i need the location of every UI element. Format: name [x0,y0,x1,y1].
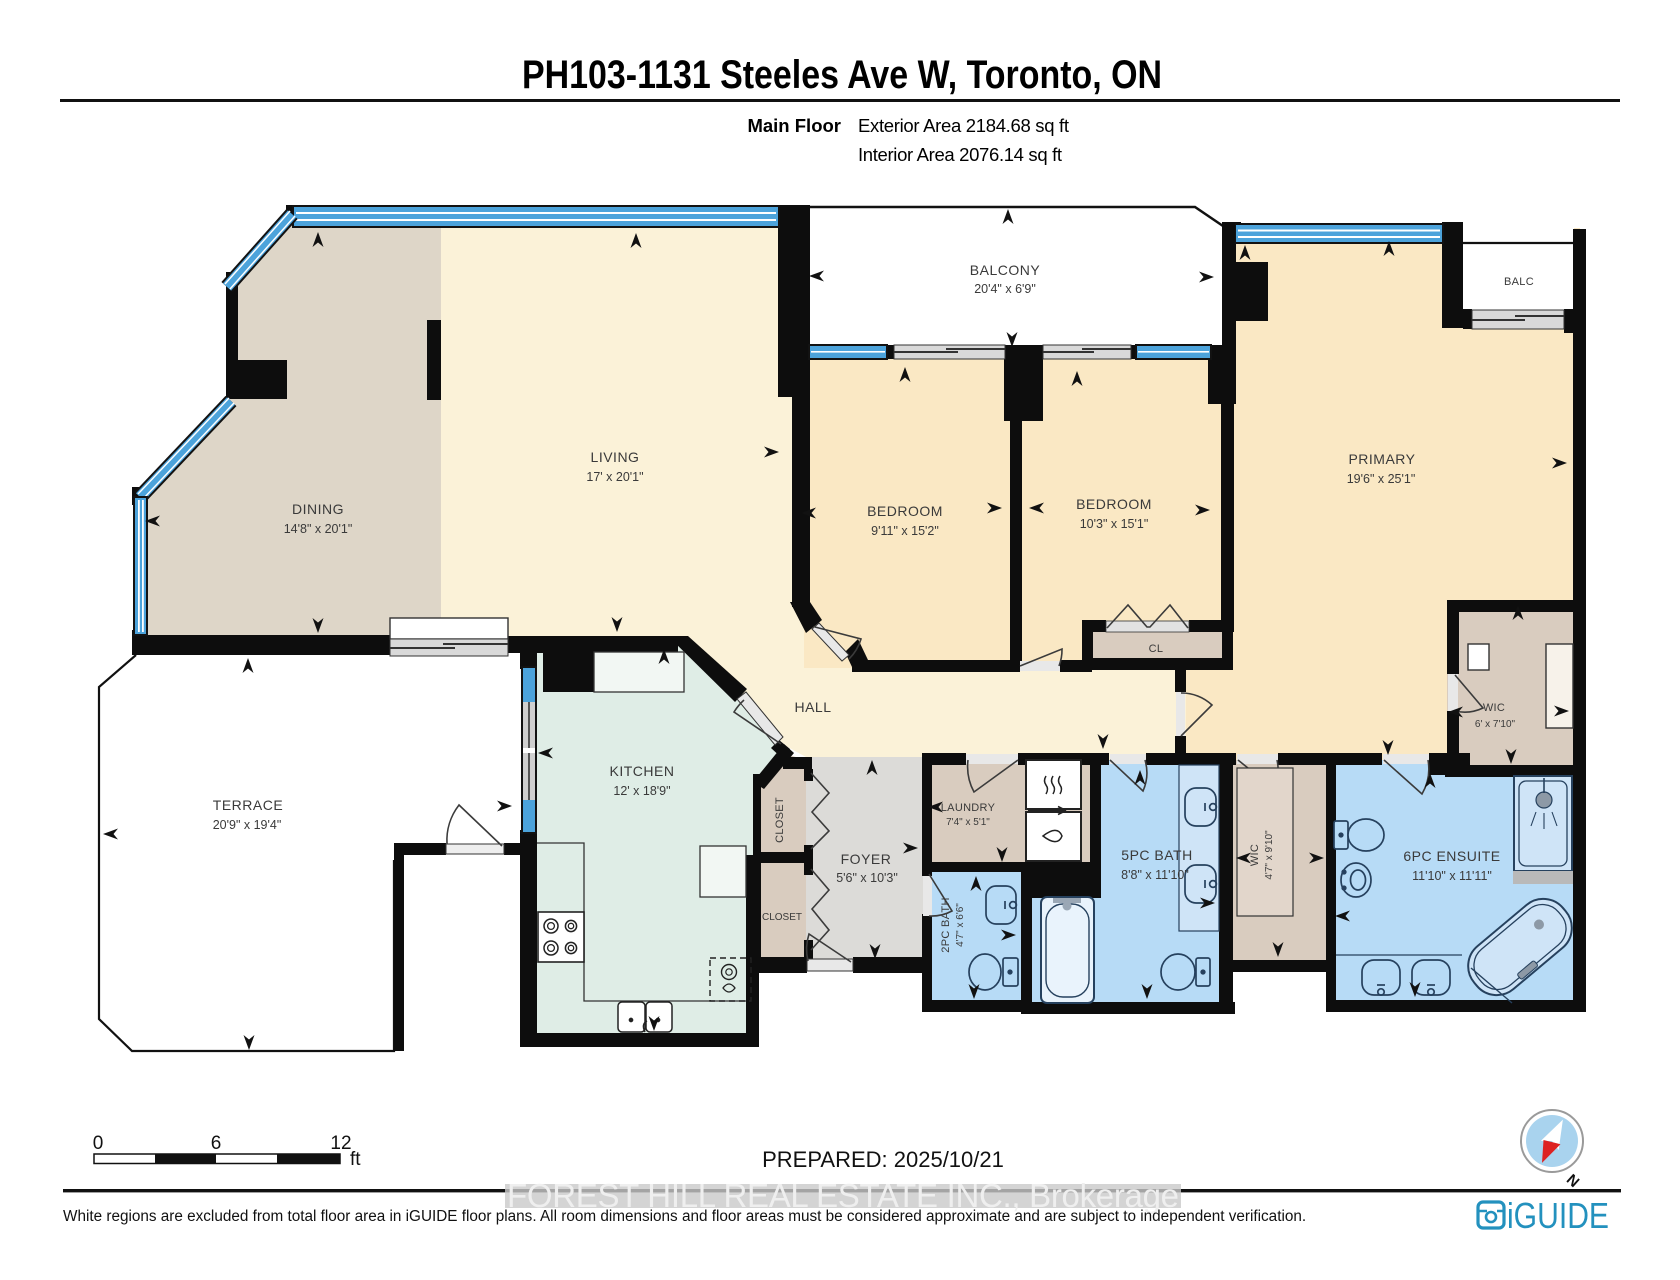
svg-text:17' x 20'1": 17' x 20'1" [586,470,643,484]
svg-text:7'4" x 5'1": 7'4" x 5'1" [946,817,990,828]
svg-text:DINING: DINING [292,501,344,517]
svg-text:Main Floor: Main Floor [747,115,841,136]
svg-text:2PC BATH: 2PC BATH [940,897,952,952]
svg-text:KITCHEN: KITCHEN [610,763,675,779]
svg-text:4'7" x 9'10": 4'7" x 9'10" [1264,830,1275,880]
svg-text:5'6" x 10'3": 5'6" x 10'3" [836,871,898,885]
svg-text:Interior Area 2076.14 sq ft: Interior Area 2076.14 sq ft [858,144,1062,165]
svg-text:WIC: WIC [1483,702,1505,714]
svg-text:CL: CL [1149,643,1164,655]
svg-text:FOYER: FOYER [841,851,892,867]
svg-text:6: 6 [211,1133,222,1154]
svg-text:Exterior Area 2184.68 sq ft: Exterior Area 2184.68 sq ft [858,115,1069,136]
svg-text:20'9" x 19'4": 20'9" x 19'4" [213,818,282,832]
svg-text:White regions are excluded fro: White regions are excluded from total fl… [63,1208,1306,1225]
svg-text:HALL: HALL [794,699,831,715]
svg-text:iGUIDE: iGUIDE [1507,1195,1609,1236]
svg-text:CLOSET: CLOSET [762,912,802,923]
svg-text:0: 0 [93,1133,104,1154]
svg-text:PH103-1131 Steeles Ave W, Toro: PH103-1131 Steeles Ave W, Toronto, ON [522,53,1162,97]
svg-text:4'7" x 6'6": 4'7" x 6'6" [955,903,966,947]
svg-text:11'10" x 11'11": 11'10" x 11'11" [1412,869,1492,883]
svg-text:LIVING: LIVING [591,449,640,465]
svg-text:12' x 18'9": 12' x 18'9" [613,784,670,798]
svg-text:BEDROOM: BEDROOM [867,503,943,519]
svg-text:6' x 7'10": 6' x 7'10" [1475,719,1516,730]
svg-text:BALC: BALC [1504,276,1534,288]
svg-text:ft: ft [350,1149,361,1170]
svg-text:PRIMARY: PRIMARY [1348,451,1415,467]
svg-text:8'8" x 11'10": 8'8" x 11'10" [1121,868,1189,882]
svg-text:LAUNDRY: LAUNDRY [941,802,996,814]
svg-text:5PC BATH: 5PC BATH [1121,847,1192,863]
svg-text:WIC: WIC [1249,844,1261,866]
svg-text:12: 12 [330,1133,351,1154]
svg-text:TERRACE: TERRACE [213,797,283,813]
svg-text:BALCONY: BALCONY [970,262,1041,278]
svg-text:10'3" x 15'1": 10'3" x 15'1" [1080,517,1149,531]
svg-text:BEDROOM: BEDROOM [1076,496,1152,512]
svg-text:CLOSET: CLOSET [774,797,786,843]
svg-text:14'8" x 20'1": 14'8" x 20'1" [284,522,353,536]
svg-text:9'11" x 15'2": 9'11" x 15'2" [871,524,939,538]
svg-text:19'6" x 25'1": 19'6" x 25'1" [1347,472,1416,486]
svg-text:PREPARED: 2025/10/21: PREPARED: 2025/10/21 [762,1147,1004,1172]
svg-text:6PC ENSUITE: 6PC ENSUITE [1403,848,1500,864]
svg-text:20'4" x 6'9": 20'4" x 6'9" [974,282,1036,296]
